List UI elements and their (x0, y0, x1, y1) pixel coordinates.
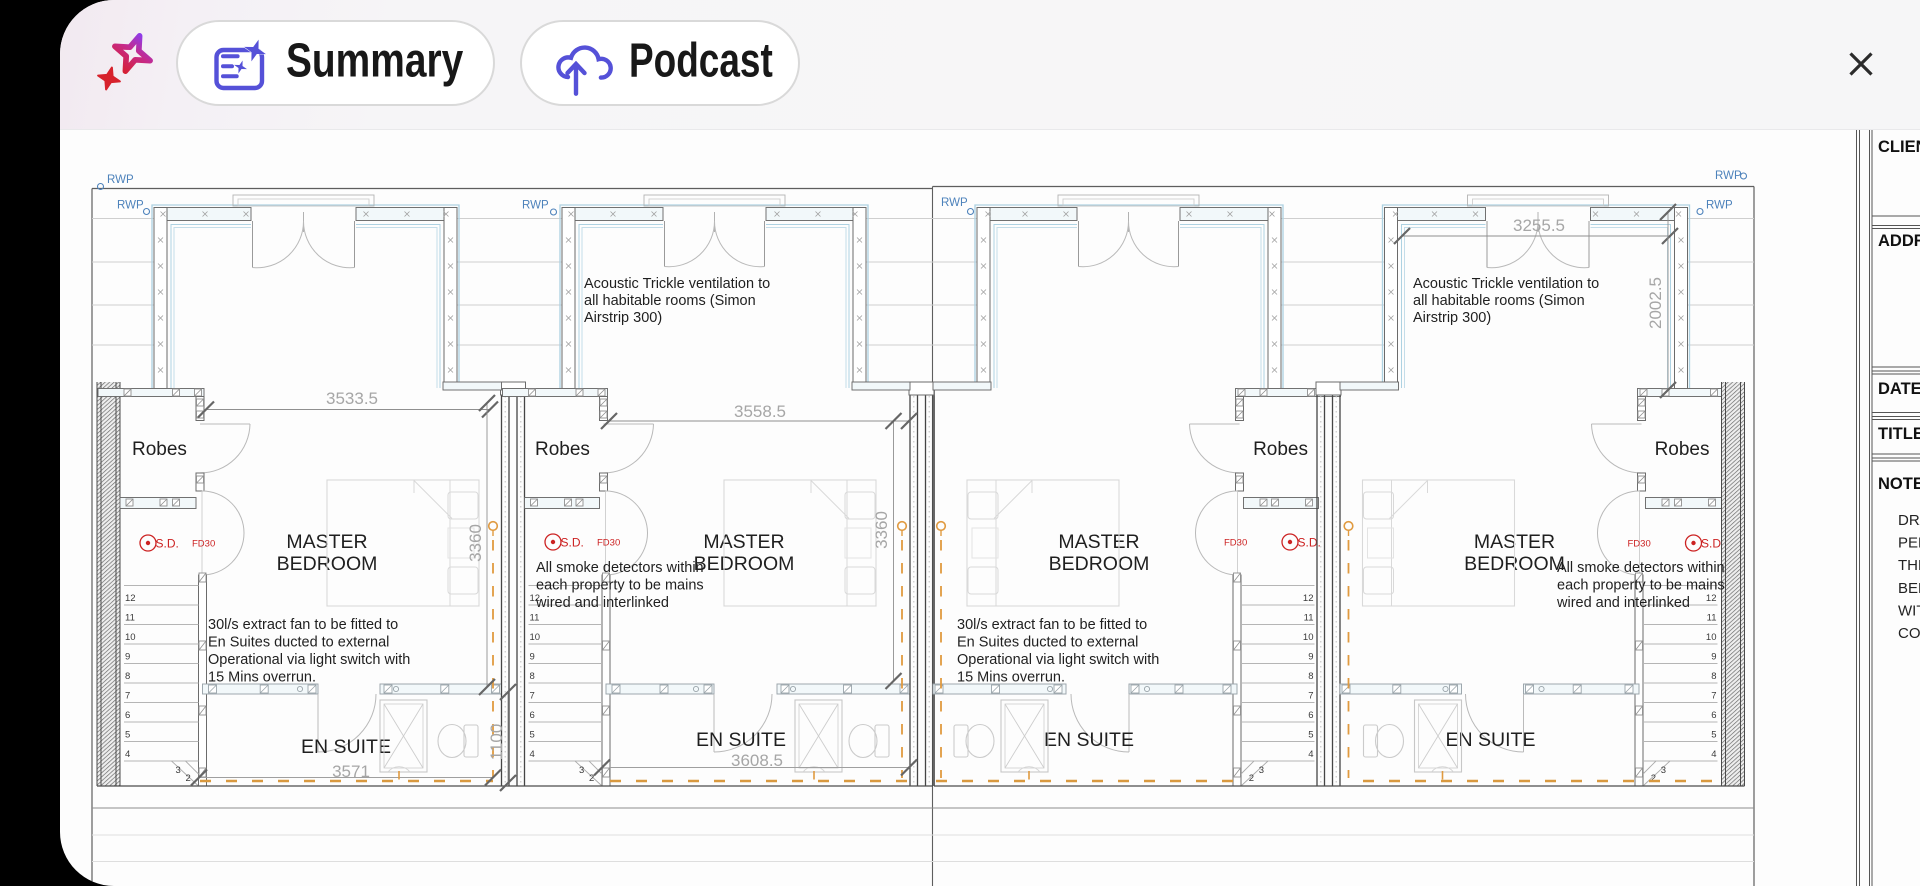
svg-text:6: 6 (1711, 710, 1716, 721)
svg-text:RWP: RWP (1715, 170, 1742, 182)
svg-text:wired and interlinked: wired and interlinked (535, 595, 669, 611)
svg-text:S.D.: S.D. (156, 537, 179, 551)
svg-text:4: 4 (530, 749, 535, 760)
svg-text:4: 4 (1308, 749, 1313, 760)
svg-text:MASTER: MASTER (1058, 531, 1139, 553)
svg-text:2: 2 (1249, 773, 1254, 784)
svg-text:ADDRESS: ADDRESS (1878, 232, 1920, 250)
svg-text:5: 5 (1308, 730, 1313, 741)
svg-text:Robes: Robes (1253, 439, 1308, 460)
svg-text:Acoustic Trickle ventilation t: Acoustic Trickle ventilation to (584, 276, 770, 292)
svg-text:RWP: RWP (117, 200, 144, 212)
svg-text:wired and interlinked: wired and interlinked (1556, 595, 1690, 611)
svg-text:TITLE: TITLE (1878, 425, 1920, 443)
svg-text:3255.5: 3255.5 (1513, 216, 1565, 235)
svg-text:FD30: FD30 (192, 539, 215, 550)
svg-text:Operational via light switch w: Operational via light switch with (208, 652, 410, 668)
svg-text:FD30: FD30 (1224, 538, 1247, 549)
svg-text:Robes: Robes (1655, 439, 1710, 460)
svg-text:BEDROOM: BEDROOM (1049, 553, 1150, 575)
svg-text:11: 11 (530, 613, 540, 624)
svg-text:RWP: RWP (941, 197, 968, 209)
svg-text:10: 10 (1303, 632, 1314, 643)
svg-text:8: 8 (1711, 671, 1716, 682)
svg-text:Robes: Robes (535, 439, 590, 460)
svg-text:10: 10 (125, 632, 136, 643)
svg-text:12: 12 (1706, 593, 1717, 604)
svg-text:10: 10 (1706, 632, 1717, 643)
svg-text:30l/s extract fan to be fitted: 30l/s extract fan to be fitted to (957, 617, 1147, 633)
svg-text:3: 3 (1661, 765, 1666, 776)
svg-text:En Suites ducted to external: En Suites ducted to external (957, 635, 1138, 651)
svg-text:DATE: DATE (1878, 380, 1920, 398)
svg-text:S.D.: S.D. (1701, 537, 1724, 551)
svg-text:MASTER: MASTER (703, 531, 784, 553)
svg-text:PERMISSION OF: PERMISSION OF (1898, 535, 1920, 552)
svg-text:7: 7 (1308, 691, 1313, 702)
svg-text:9: 9 (1308, 652, 1313, 663)
svg-text:5: 5 (125, 730, 130, 741)
svg-text:5: 5 (530, 730, 535, 741)
svg-text:each property to be mains: each property to be mains (536, 578, 704, 594)
svg-text:CONTRACT: CONTRACT (1898, 625, 1920, 642)
svg-text:En Suites ducted to external: En Suites ducted to external (208, 635, 389, 651)
svg-text:2: 2 (186, 773, 191, 784)
svg-text:EN SUITE: EN SUITE (696, 729, 786, 751)
svg-text:8: 8 (530, 671, 535, 682)
svg-text:7: 7 (1711, 691, 1716, 702)
svg-text:2: 2 (1651, 773, 1656, 784)
svg-text:3360: 3360 (872, 511, 891, 549)
svg-text:Airstrip 300): Airstrip 300) (1413, 310, 1491, 326)
svg-text:6: 6 (530, 710, 535, 721)
svg-text:Operational via light switch w: Operational via light switch with (957, 652, 1159, 668)
svg-text:4: 4 (125, 749, 130, 760)
svg-text:CLIENT: CLIENT (1878, 138, 1920, 156)
svg-text:10: 10 (530, 632, 541, 643)
svg-text:NOTES: NOTES (1878, 475, 1920, 493)
svg-text:EN SUITE: EN SUITE (1044, 729, 1134, 751)
svg-text:3360: 3360 (466, 524, 485, 562)
svg-text:3571: 3571 (332, 762, 370, 781)
svg-text:3608.5: 3608.5 (731, 751, 783, 770)
svg-text:9: 9 (125, 652, 130, 663)
svg-text:EN SUITE: EN SUITE (301, 736, 391, 758)
svg-text:all habitable rooms (Simon: all habitable rooms (Simon (584, 293, 756, 309)
svg-text:FD30: FD30 (597, 538, 620, 549)
svg-text:S.D.: S.D. (561, 536, 584, 550)
svg-text:1100: 1100 (487, 724, 506, 761)
svg-text:Robes: Robes (132, 439, 187, 460)
svg-text:6: 6 (125, 710, 130, 721)
svg-text:3: 3 (176, 765, 181, 776)
svg-text:THE CONTRACTOR: THE CONTRACTOR (1898, 557, 1920, 574)
svg-text:All smoke detectors within: All smoke detectors within (536, 560, 704, 576)
svg-text:RWP: RWP (107, 174, 134, 186)
svg-text:8: 8 (125, 671, 130, 682)
svg-text:BEFORE WORK: BEFORE WORK (1898, 580, 1920, 597)
svg-text:2002.5: 2002.5 (1646, 277, 1665, 329)
svg-text:3: 3 (579, 765, 584, 776)
svg-text:5: 5 (1711, 730, 1716, 741)
svg-text:12: 12 (1303, 593, 1314, 604)
svg-text:30l/s extract fan to be fitted: 30l/s extract fan to be fitted to (208, 617, 398, 633)
svg-text:RWP: RWP (1706, 200, 1733, 212)
svg-text:11: 11 (125, 613, 135, 624)
svg-text:DRAWINGS ARE: DRAWINGS ARE (1898, 512, 1920, 529)
svg-text:all habitable rooms (Simon: all habitable rooms (Simon (1413, 293, 1585, 309)
svg-text:11: 11 (1304, 613, 1314, 624)
svg-text:Airstrip 300): Airstrip 300) (584, 310, 662, 326)
svg-text:BEDROOM: BEDROOM (694, 553, 795, 575)
svg-text:3558.5: 3558.5 (734, 402, 786, 421)
svg-text:6: 6 (1308, 710, 1313, 721)
svg-text:each property to be mains: each property to be mains (1557, 578, 1725, 594)
svg-text:Acoustic Trickle ventilation t: Acoustic Trickle ventilation to (1413, 276, 1599, 292)
svg-text:8: 8 (1308, 671, 1313, 682)
svg-text:7: 7 (125, 691, 130, 702)
svg-text:EN SUITE: EN SUITE (1446, 729, 1536, 751)
svg-text:WITH ALL: WITH ALL (1898, 602, 1920, 619)
svg-text:11: 11 (1707, 613, 1717, 624)
svg-text:12: 12 (125, 593, 136, 604)
svg-text:15 Mins overrun.: 15 Mins overrun. (957, 670, 1065, 686)
svg-text:7: 7 (530, 691, 535, 702)
svg-text:All smoke detectors within: All smoke detectors within (1557, 560, 1725, 576)
svg-text:3: 3 (1259, 765, 1264, 776)
svg-text:3533.5: 3533.5 (326, 389, 378, 408)
svg-text:RWP: RWP (522, 200, 549, 212)
svg-text:4: 4 (1711, 749, 1716, 760)
svg-text:9: 9 (530, 652, 535, 663)
svg-text:15 Mins overrun.: 15 Mins overrun. (208, 670, 316, 686)
svg-text:9: 9 (1711, 652, 1716, 663)
svg-text:FD30: FD30 (1628, 539, 1651, 550)
